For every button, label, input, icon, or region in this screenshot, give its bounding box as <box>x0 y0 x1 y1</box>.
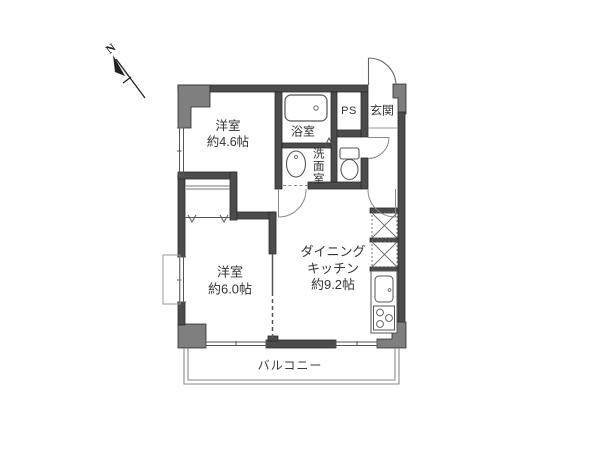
window-bedroom-small <box>177 128 186 176</box>
floorplan-canvas: N 洋室 約4.6帖 浴室 PS 玄関 洗面室 洋室 約6.0帖 ダイニング キ… <box>0 0 600 450</box>
dining-kitchen-size: 約9.2帖 <box>300 277 365 294</box>
kitchen-counter <box>371 271 397 333</box>
dining-kitchen-name-1: ダイニング <box>300 244 365 261</box>
bedroom-small-size: 約4.6帖 <box>207 134 249 150</box>
room-label-bathroom: 浴室 <box>291 124 315 139</box>
closet <box>185 186 230 222</box>
entrance-door <box>369 58 397 86</box>
room-label-washroom: 洗面室 <box>311 147 323 185</box>
toilet-door <box>368 138 389 159</box>
appliance-space-1 <box>372 213 397 238</box>
window-bedroom-large <box>163 255 186 304</box>
room-label-bedroom-large: 洋室 約6.0帖 <box>208 264 252 297</box>
room-label-entrance: 玄関 <box>370 103 394 118</box>
appliance-space-2 <box>372 242 397 267</box>
window-balcony-left <box>206 340 266 348</box>
bedroom-large-name: 洋室 <box>208 264 252 281</box>
room-label-balcony: バルコニー <box>258 358 323 373</box>
washroom-door <box>279 186 309 218</box>
north-arrow <box>113 55 145 98</box>
room-label-dining-kitchen: ダイニング キッチン 約9.2帖 <box>300 244 365 294</box>
bedroom-small-name: 洋室 <box>207 118 249 134</box>
dining-kitchen-name-2: キッチン <box>300 261 365 278</box>
bedroom-large-size: 約6.0帖 <box>208 281 252 298</box>
room-label-bedroom-small: 洋室 約4.6帖 <box>207 118 249 150</box>
window-balcony-right <box>336 340 377 348</box>
room-label-pipe-space: PS <box>341 104 357 118</box>
bathtub <box>285 95 327 121</box>
washbasin <box>287 151 306 177</box>
floorplan-drawing <box>0 0 600 450</box>
toilet <box>340 148 359 180</box>
